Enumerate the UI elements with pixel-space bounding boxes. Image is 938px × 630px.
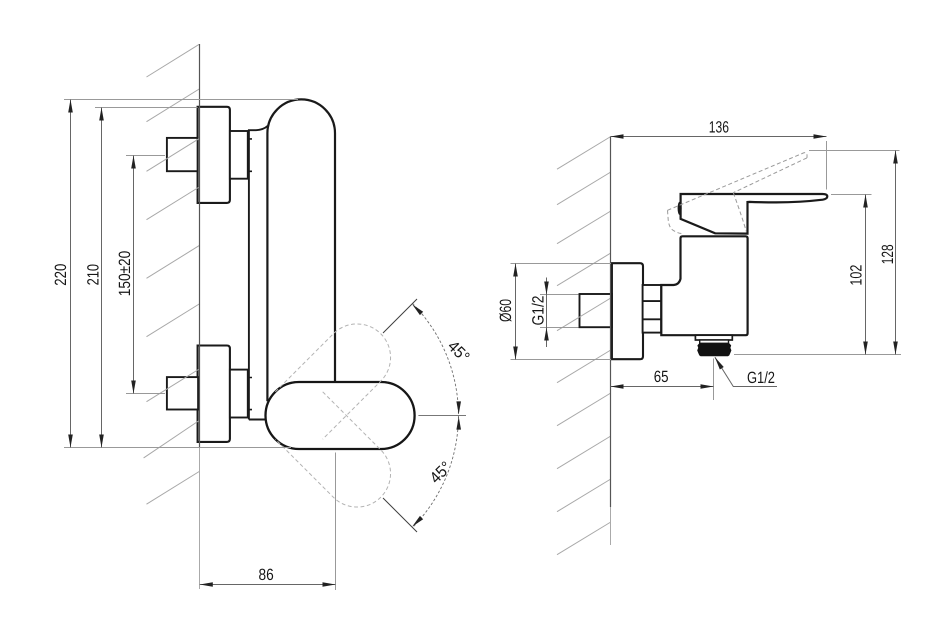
svg-text:220: 220 bbox=[52, 264, 70, 286]
svg-text:G1/2: G1/2 bbox=[747, 369, 775, 387]
svg-text:136: 136 bbox=[709, 118, 729, 136]
svg-text:G1/2: G1/2 bbox=[529, 296, 547, 326]
svg-text:86: 86 bbox=[259, 566, 274, 584]
svg-text:210: 210 bbox=[84, 264, 102, 285]
svg-text:102: 102 bbox=[847, 265, 865, 286]
svg-text:Ø60: Ø60 bbox=[497, 299, 515, 322]
svg-text:65: 65 bbox=[654, 368, 669, 386]
svg-text:128: 128 bbox=[879, 244, 897, 264]
svg-text:150±20: 150±20 bbox=[116, 251, 134, 297]
